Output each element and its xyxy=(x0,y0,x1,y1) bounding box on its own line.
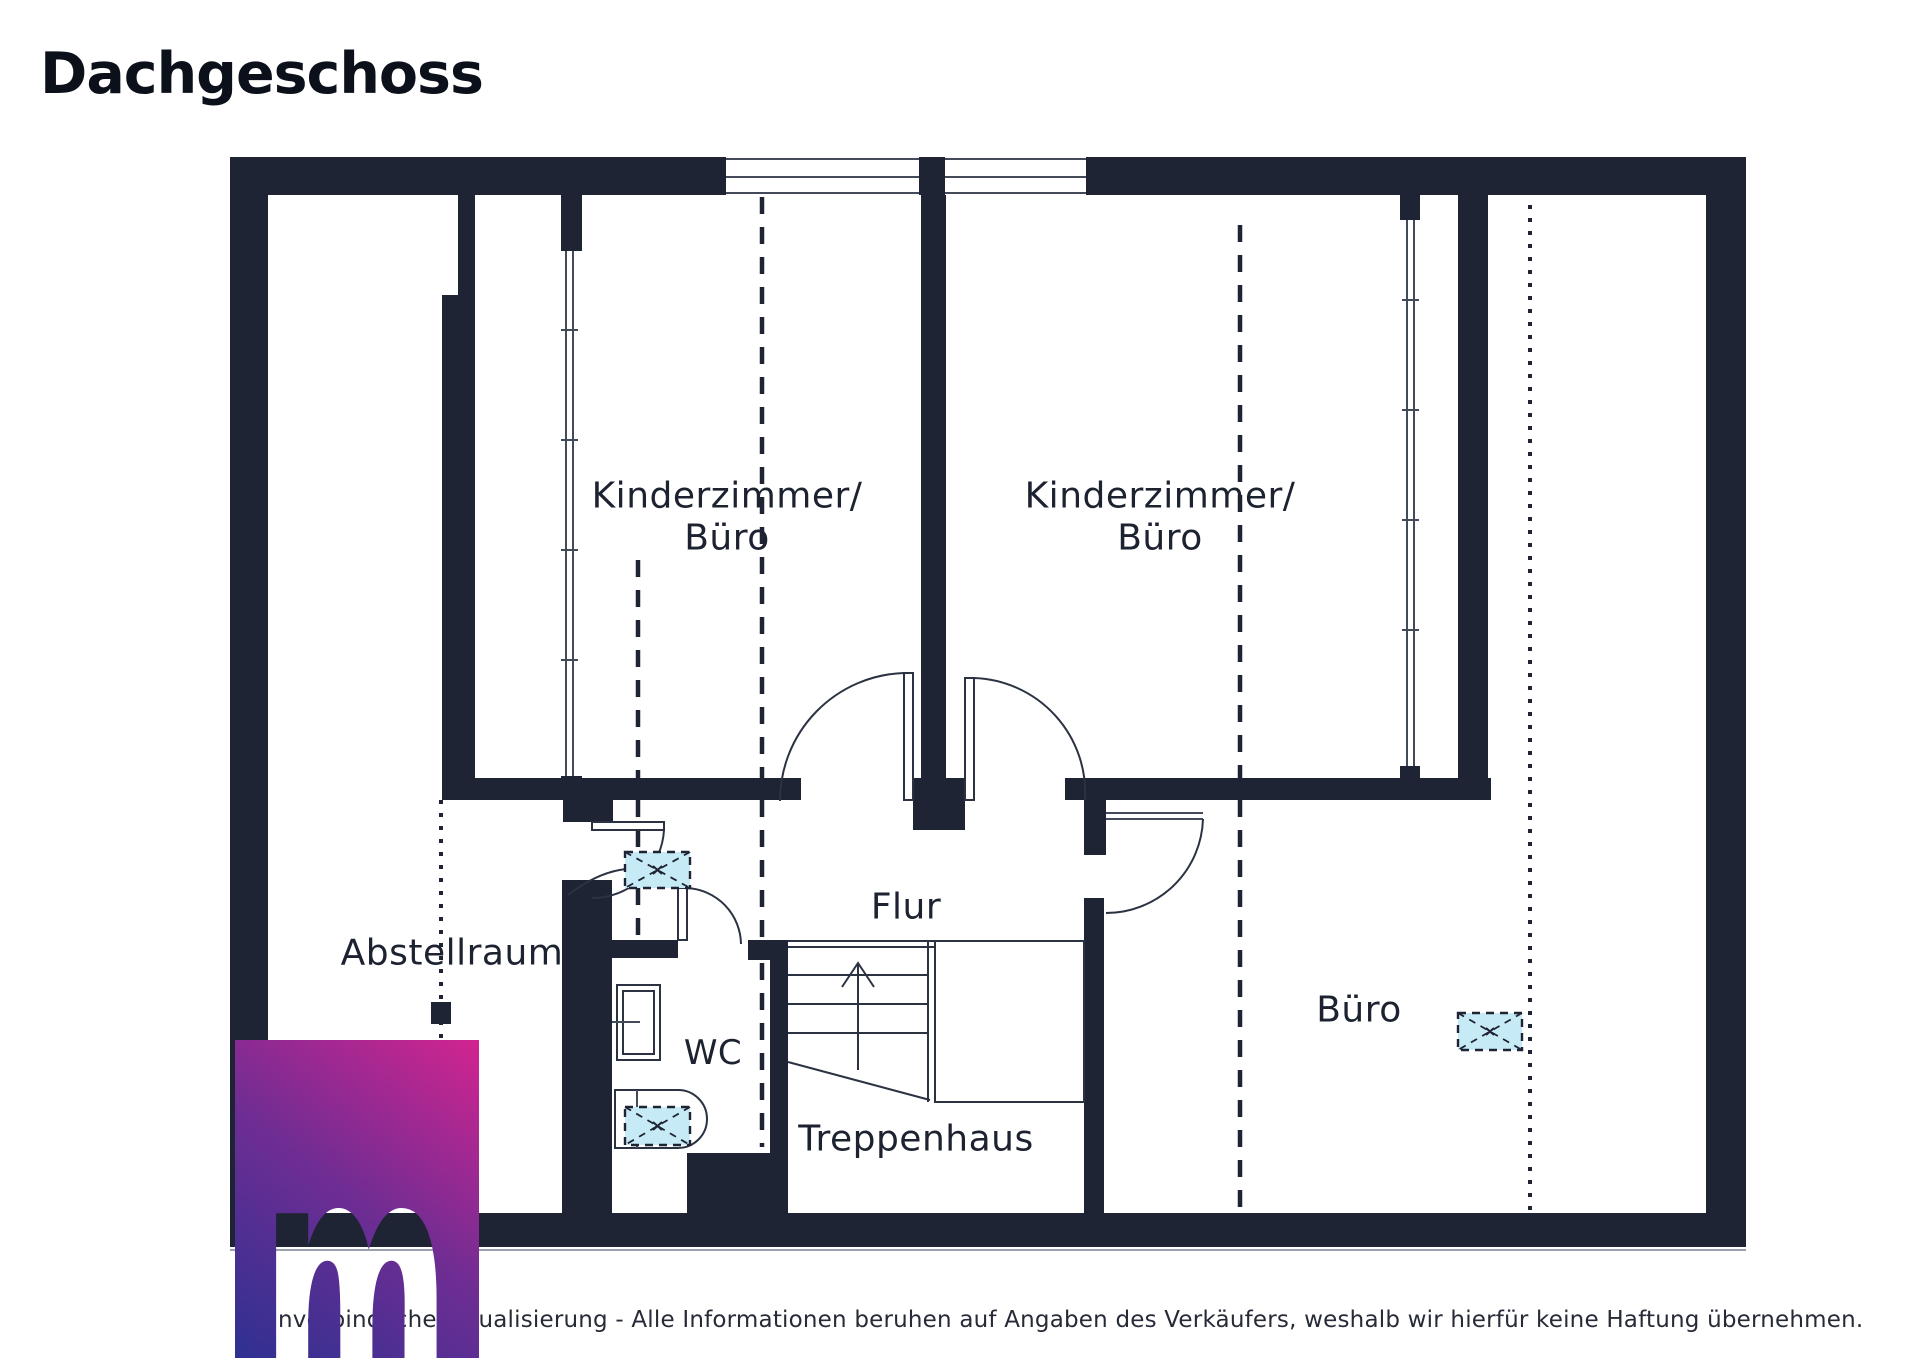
room-label-kinderzimmer1-line2: Büro xyxy=(684,518,770,559)
room-label-abstellraum: Abstellraum xyxy=(341,933,564,974)
glazing-k2 xyxy=(1402,220,1419,766)
stair-void xyxy=(935,941,1084,1102)
stairs-direction-arrow xyxy=(842,963,874,1070)
glazing-k1 xyxy=(561,251,578,776)
window-pier xyxy=(921,157,943,195)
skylight-symbol-1 xyxy=(625,852,690,888)
logo-m xyxy=(235,1040,479,1358)
wc-sink xyxy=(612,985,660,1060)
roofline-marker xyxy=(431,1002,451,1024)
skylight-symbol-2 xyxy=(625,1107,690,1145)
top-window-right xyxy=(942,157,1089,195)
page-title: Dachgeschoss xyxy=(40,41,483,107)
room-label-wc: WC xyxy=(684,1033,742,1073)
door-buero xyxy=(1106,813,1203,913)
room-label-kinderzimmer2-line2: Büro xyxy=(1117,518,1203,559)
room-label-treppenhaus: Treppenhaus xyxy=(797,1119,1033,1160)
top-window-left xyxy=(723,157,922,195)
floorplan-page: m Dachgeschoss Unverbindliche Visualisie… xyxy=(0,0,1920,1358)
room-label-flur: Flur xyxy=(871,887,941,928)
room-label-buero: Büro xyxy=(1316,990,1402,1031)
room-label-kinderzimmer1-line1: Kinderzimmer/ xyxy=(592,476,863,517)
skylight-symbol-3 xyxy=(1458,1013,1522,1050)
room-label-kinderzimmer2-line1: Kinderzimmer/ xyxy=(1025,476,1296,517)
staircase xyxy=(788,941,1084,1102)
disclaimer-text: Unverbindliche Visualisierung - Alle Inf… xyxy=(261,1307,1863,1333)
